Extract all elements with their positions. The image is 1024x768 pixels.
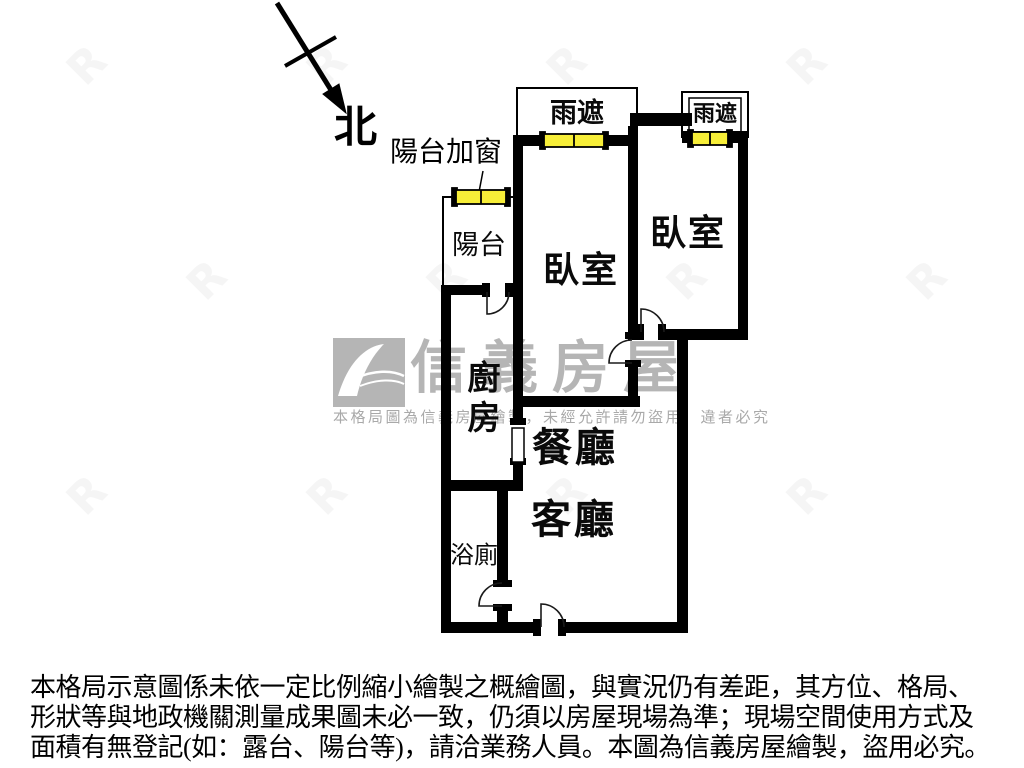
wall <box>561 622 688 633</box>
wall <box>738 137 748 340</box>
floor-plan-page: RRRRRRRRRRRR 信義房屋 本格局圖為信義房屋繪製，未經允許請勿盜用，違… <box>0 0 1024 768</box>
door-jamb <box>533 619 541 636</box>
balcony-window-note: 陽台加窗 <box>390 139 502 167</box>
wall <box>441 285 451 632</box>
wall <box>513 135 523 423</box>
bathroom-label: 浴廁 <box>450 544 498 568</box>
door-jamb <box>636 324 644 340</box>
wall <box>441 480 523 491</box>
wall <box>663 329 748 340</box>
door-jamb <box>558 619 566 636</box>
kitchen-label: 廚房 <box>463 360 496 440</box>
floor-plan-drawing <box>0 0 1024 768</box>
disclaimer-line: 面積有無登記(如：露台、陽台等)，請洽業務人員。本圖為信義房屋繪製，盜用必究。 <box>30 735 990 761</box>
door-jamb <box>493 604 512 611</box>
wall <box>513 396 640 407</box>
dining-label: 餐廳 <box>532 428 618 468</box>
disclaimer-line: 本格局示意圖係未依一定比例縮小繪製之概繪圖，與實況仍有差距，其方位、格局、 <box>30 675 974 701</box>
door-jamb <box>510 418 526 425</box>
bedroom-left-door <box>609 340 632 363</box>
door-jamb <box>482 283 490 297</box>
kitchen-pass-through <box>512 428 524 462</box>
wall <box>497 491 508 586</box>
bedroom-left-label: 臥室 <box>543 252 619 288</box>
balcony-label: 陽台 <box>441 232 517 259</box>
bedroom-right-label: 臥室 <box>650 215 726 251</box>
wall <box>677 334 688 632</box>
wall <box>628 126 638 339</box>
living-label: 客廳 <box>531 500 617 540</box>
callout-line <box>479 171 483 192</box>
rain-shield-right-label: 雨遮 <box>682 103 748 125</box>
disclaimer-line: 形狀等與地政機關測量成果圖未必一致，仍須以房屋現場為準；現場空間使用方式及 <box>30 705 974 731</box>
wall <box>441 622 537 633</box>
rain-shield-left-label: 雨遮 <box>517 100 637 127</box>
north-arrow-icon <box>277 3 346 113</box>
north-label: 北 <box>334 107 377 150</box>
